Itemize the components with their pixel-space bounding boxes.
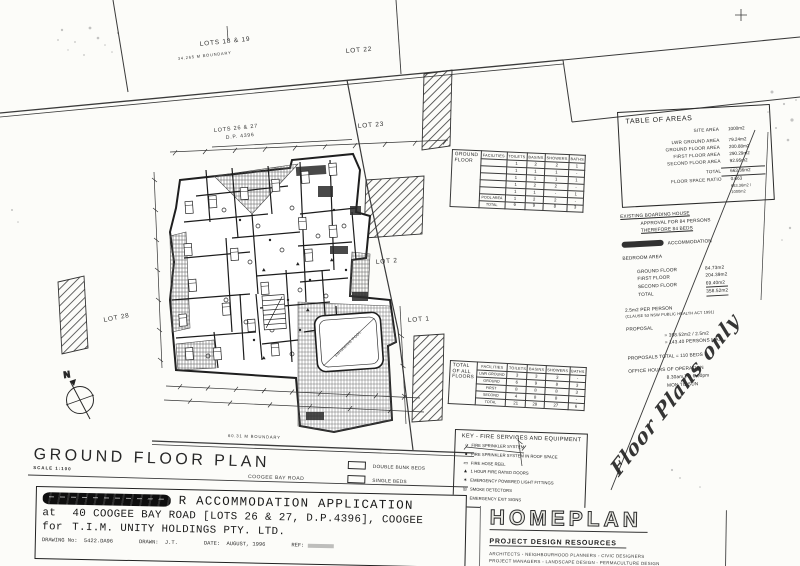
key-item-label: 1 HOUR FIRE RATED DOORS [470, 469, 528, 476]
legend-label: SINGLE BEDS [372, 477, 407, 483]
key-symbol-icon: ○ [461, 441, 471, 450]
note-line: BEDROOM AREA [622, 246, 787, 262]
key-item-label: EMERGENCY POWERED LIGHT FITTINGS [470, 478, 553, 486]
label-lot-23: LOT 23 [358, 121, 385, 130]
key-items: ○FIRE SPRINKLER SYSTEM●FIRE SPRINKLER SY… [459, 441, 581, 506]
homeplan-tagline: PROJECT DESIGN RESOURCES [489, 538, 626, 548]
key-symbol-icon: ▲ [460, 467, 470, 476]
drawing-title-block: R ACCOMMODATION APPLICATION at40 COOGEE … [34, 486, 466, 566]
label-lot-28: LOT 28 [103, 312, 130, 324]
key-symbol-icon: ▭ [461, 459, 471, 468]
scanned-plan-sheet: SWIMMING POOL N LOTS [0, 0, 800, 566]
all-floors-facilities-table: TOTAL OF ALL FLOORSFACILITIESTOILETSBASI… [448, 360, 587, 411]
key-item-label: SMOKE DETECTORS [470, 486, 512, 492]
label-lot-2: LOT 2 [376, 257, 398, 266]
table-corner-label: GROUND FLOOR [450, 150, 481, 208]
fire-services-key: KEY - FIRE SERVICES AND EQUIPMENT ○FIRE … [452, 429, 588, 512]
table-cell: TOTAL [479, 201, 505, 209]
key-item-label: EMERGENCY EXIT SIGNS [470, 495, 522, 502]
label-dp: D.P. 4396 [226, 132, 255, 141]
key-symbol-icon: ◎ [460, 485, 470, 494]
table-cell: 21 [505, 400, 525, 408]
key-item-label: FIRE SPRINKLER SYSTEM [471, 443, 524, 450]
north-arrow: N [63, 369, 94, 419]
drawing-number: 5422.DA96 [84, 538, 113, 545]
table-cell: TOTAL [475, 398, 506, 407]
homeplan-logo: HOMEPLAN [490, 507, 649, 533]
stairs [262, 294, 286, 329]
ground-floor-facilities-table: GROUND FLOORFACILITIESTOILETSBASINSSHOWE… [449, 149, 586, 213]
survey-cross-mark [735, 9, 747, 21]
legend-label: DOUBLE BUNK BEDS [373, 463, 426, 470]
north-label: N [63, 369, 71, 380]
crossed-out-word [43, 492, 171, 507]
planning-notes: EXISTING BOARDING HOUSEAPPROVAL FOR 84 P… [620, 204, 794, 390]
bed-legend: DOUBLE BUNK BEDSSINGLE BEDS [347, 461, 425, 492]
key-item-label: FIRE HOSE REEL [471, 460, 506, 466]
legend-item: SINGLE BEDS [347, 475, 425, 486]
table-cell: 8 [543, 204, 567, 212]
homeplan-block: HOMEPLAN PROJECT DESIGN RESOURCES ARCHIT… [479, 506, 727, 566]
key-item-label: FIRE SPRINKLER SYSTEM IN ROOF SPACE [471, 451, 558, 459]
label-boundary-top: 34.265 M BOUNDARY [178, 50, 232, 61]
bed-swatch-icon [348, 461, 366, 470]
ref-smudge [307, 543, 333, 548]
label-lot-1: LOT 1 [408, 315, 430, 324]
label-boundary-bottom: 60.31 M BOUNDARY [228, 433, 281, 440]
table-cell: 28 [526, 401, 544, 409]
struck-word [622, 240, 664, 248]
table-cell: 27 [544, 402, 568, 410]
table-of-areas: TABLE OF AREAS SITE AREA1000m2LWR GROUND… [617, 104, 775, 208]
drawing-date: AUGUST, 1996 [226, 541, 265, 548]
table-cell: 9 [525, 203, 543, 211]
label-lots-18-19: LOTS 18 & 19 [199, 36, 250, 48]
note-line: ACCOMMODATION [621, 233, 786, 249]
table-cell: 6 [568, 403, 585, 411]
key-symbol-icon: ● [461, 450, 471, 459]
table-cell: 3 [567, 205, 584, 213]
key-symbol-icon: ✶ [460, 476, 470, 485]
label-lot-22: LOT 22 [346, 46, 373, 55]
table-cell: 6 [504, 202, 524, 210]
table-of-areas-rows: SITE AREA1000m2LWR GROUND AREA79.24m2GRO… [626, 124, 766, 200]
drawn-by: J.T. [165, 540, 178, 546]
swimming-pool: SWIMMING POOL [314, 312, 384, 372]
bed-swatch-icon [347, 475, 365, 484]
legend-item: DOUBLE BUNK BEDS [348, 461, 426, 472]
note-line: PROPOSALS TOTAL = 110 BEDS [627, 346, 792, 362]
table-corner-label: TOTAL OF ALL FLOORS [448, 361, 477, 405]
